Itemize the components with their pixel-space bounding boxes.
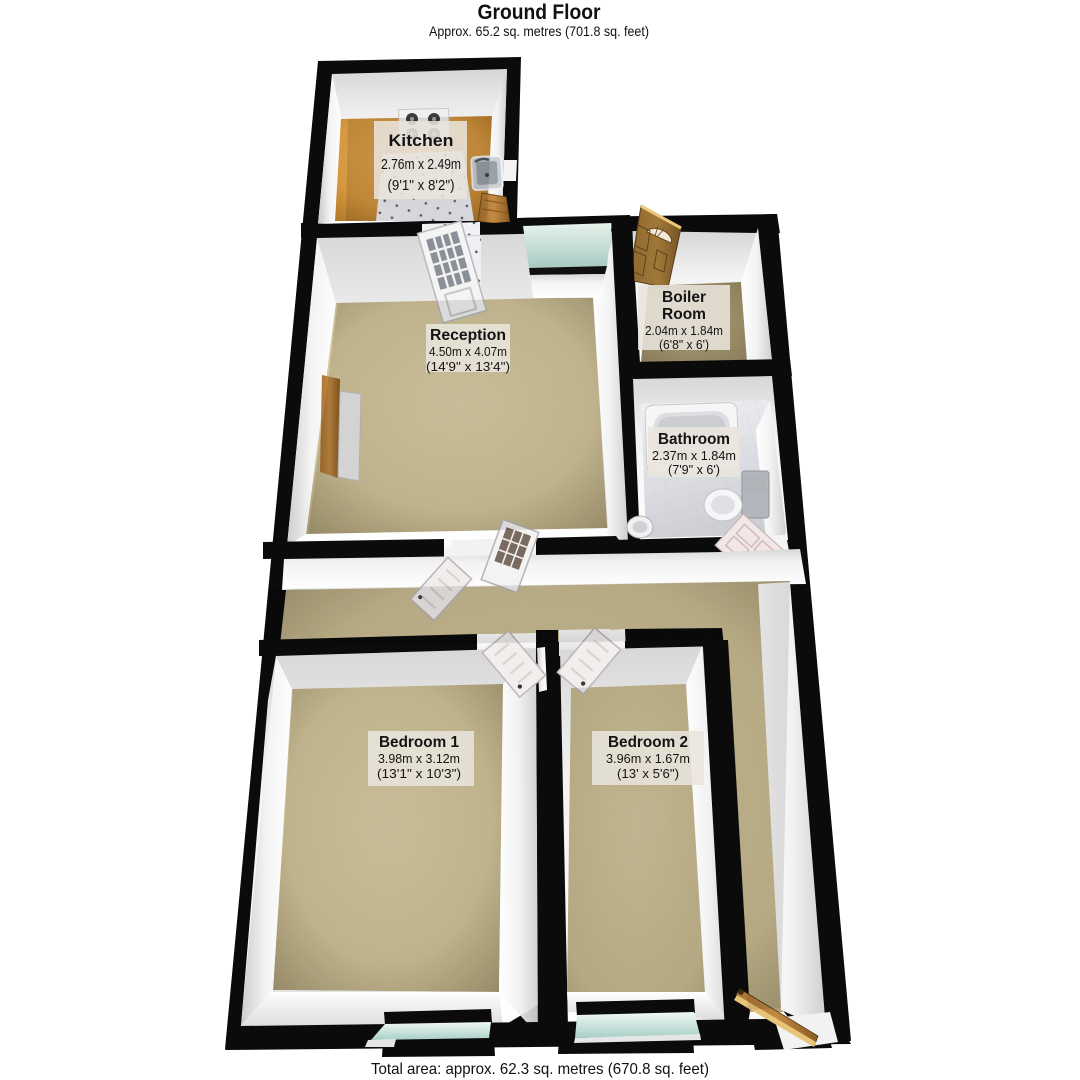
svg-text:Kitchen: Kitchen <box>389 131 454 150</box>
svg-text:Total area: approx. 62.3 sq.: Total area: approx. 62.3 sq. metres (670… <box>371 1061 709 1078</box>
svg-text:2.37m x 1.84m: 2.37m x 1.84m <box>652 448 736 463</box>
svg-text:3.96m x 1.67m: 3.96m x 1.67m <box>606 751 690 766</box>
svg-text:2.76m x 2.49m: 2.76m x 2.49m <box>381 157 461 173</box>
svg-text:3.98m x 3.12m: 3.98m x 3.12m <box>378 751 460 766</box>
svg-text:(13'1" x 10'3"): (13'1" x 10'3") <box>377 766 461 781</box>
svg-text:Reception: Reception <box>430 327 506 344</box>
svg-text:Bedroom 2: Bedroom 2 <box>608 734 688 751</box>
svg-text:(9'1" x 8'2"): (9'1" x 8'2") <box>388 178 455 194</box>
svg-text:Boiler: Boiler <box>662 289 706 306</box>
svg-text:(6'8" x 6'): (6'8" x 6') <box>659 337 709 352</box>
svg-text:4.50m x 4.07m: 4.50m x 4.07m <box>429 344 507 359</box>
svg-text:Ground Floor: Ground Floor <box>478 1 601 24</box>
svg-text:(13' x 5'6"): (13' x 5'6") <box>617 766 679 781</box>
svg-text:Bedroom 1: Bedroom 1 <box>379 734 459 751</box>
svg-text:Bathroom: Bathroom <box>658 431 730 448</box>
svg-text:2.04m x 1.84m: 2.04m x 1.84m <box>645 323 723 338</box>
svg-text:(7'9" x 6'): (7'9" x 6') <box>668 462 720 477</box>
svg-text:(14'9" x 13'4"): (14'9" x 13'4") <box>426 359 510 374</box>
svg-text:Room: Room <box>662 306 706 323</box>
svg-text:Approx. 65.2 sq. metres (701.: Approx. 65.2 sq. metres (701.8 sq. feet) <box>429 23 649 39</box>
